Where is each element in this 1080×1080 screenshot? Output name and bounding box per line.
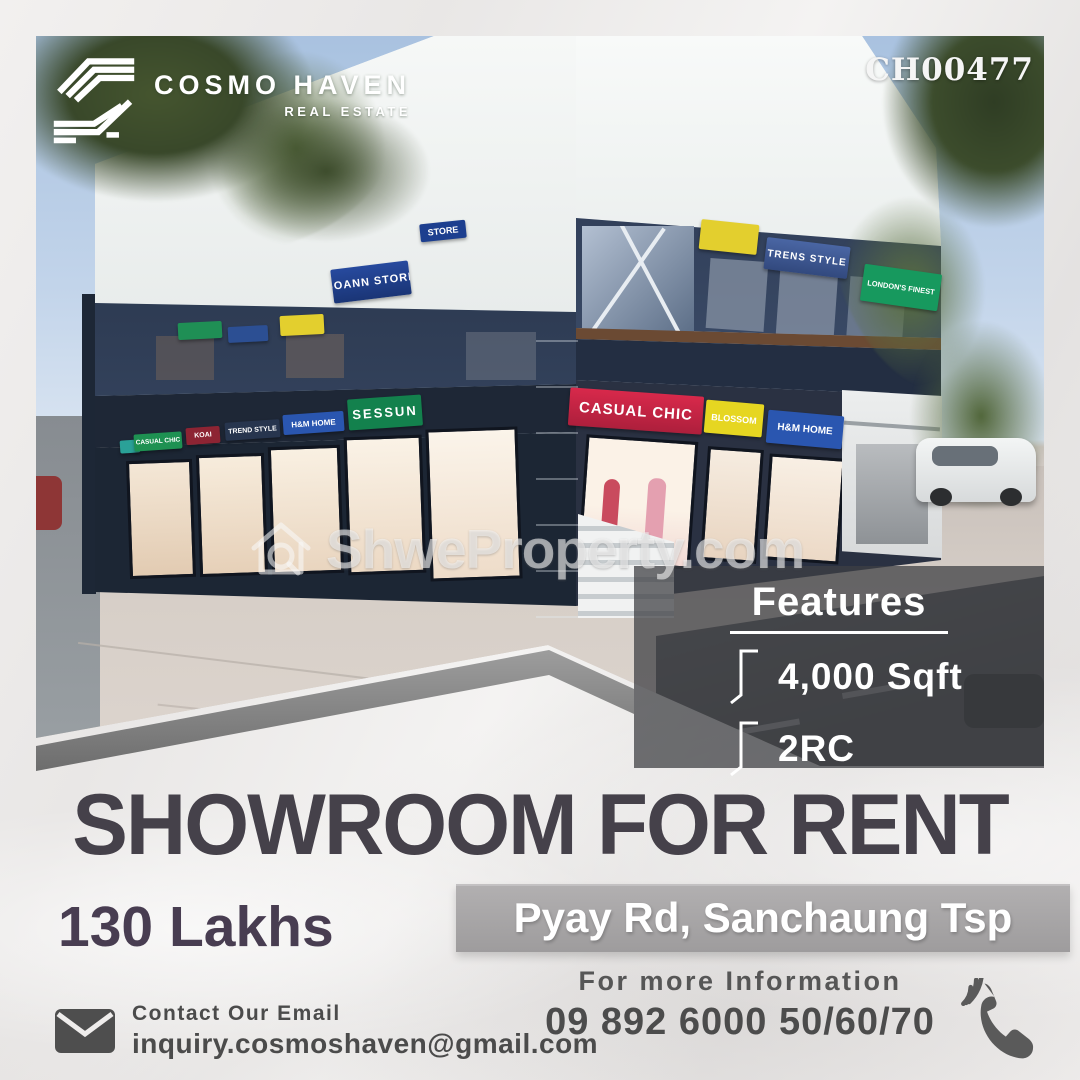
flyer-canvas: SOANN STORE STORE TRENS STYLE LONDON'S F… xyxy=(0,0,1080,1080)
white-car xyxy=(916,438,1036,502)
envelope-icon xyxy=(54,1008,116,1054)
watermark: ShweProperty.com xyxy=(248,516,804,582)
feature-item-text: 2RC xyxy=(778,728,855,770)
headline: SHOWROOM FOR RENT xyxy=(55,776,1025,875)
car-wheel xyxy=(930,488,952,506)
price: 130 Lakhs xyxy=(58,894,334,960)
shop-window xyxy=(126,459,196,579)
location-text: Pyay Rd, Sanchaung Tsp xyxy=(514,894,1013,942)
window-upper-left xyxy=(466,332,536,380)
red-car-edge xyxy=(36,476,62,530)
email-block: Contact Our Email inquiry.cosmoshaven@gm… xyxy=(54,1002,598,1060)
store-sign-koai: KOAI xyxy=(185,426,220,445)
window-upper-left xyxy=(156,336,214,380)
brand-name: COSMO HAVEN xyxy=(154,70,411,101)
store-sign-sessun: SESSUN xyxy=(347,394,423,430)
window-upper-right xyxy=(776,266,839,340)
store-sign-small-green xyxy=(178,321,223,340)
brand-logo: COSMO HAVEN REAL ESTATE xyxy=(48,42,411,146)
info-label: For more Information xyxy=(535,966,945,997)
watermark-text: ShweProperty.com xyxy=(326,517,804,581)
email-label: Contact Our Email xyxy=(132,1002,598,1026)
building-side-edge xyxy=(82,294,96,594)
store-sign-casual-chic-left: CASUAL CHIC xyxy=(133,431,182,451)
phone-number: 09 892 6000 50/60/70 xyxy=(535,1001,945,1044)
info-block: For more Information 09 892 6000 50/60/7… xyxy=(535,966,945,1044)
phone-icon xyxy=(956,978,1048,1070)
watermark-house-icon xyxy=(248,516,314,582)
store-sign-blossom: BLOSSOM xyxy=(704,400,765,438)
bracket-icon xyxy=(730,720,760,778)
store-sign-hm-home-left: H&M HOME xyxy=(282,411,344,435)
email-texts: Contact Our Email inquiry.cosmoshaven@gm… xyxy=(132,1002,598,1060)
corner-angular-window xyxy=(582,226,694,332)
cosmo-haven-logo-icon xyxy=(48,42,140,146)
brand-tagline: REAL ESTATE xyxy=(154,104,411,119)
features-underline xyxy=(730,631,948,634)
store-sign-trend-style: TREND STYLE xyxy=(224,419,280,441)
store-sign-small-blue xyxy=(228,325,269,343)
store-sign-small-yellow xyxy=(280,314,325,336)
store-sign-upper-yellow xyxy=(699,219,760,255)
feature-item: 4,000 Sqft xyxy=(730,648,1044,706)
features-title: Features xyxy=(634,580,1044,625)
brand-text: COSMO HAVEN REAL ESTATE xyxy=(154,70,411,119)
location-banner: Pyay Rd, Sanchaung Tsp xyxy=(456,884,1070,952)
store-sign-hm-home-right: H&M HOME xyxy=(766,410,845,449)
car-wheel xyxy=(1000,488,1022,506)
feature-item-text: 4,000 Sqft xyxy=(778,656,963,698)
bracket-icon xyxy=(730,648,760,706)
features-box: Features 4,000 Sqft 2RC xyxy=(634,566,1044,768)
email-address: inquiry.cosmoshaven@gmail.com xyxy=(132,1028,598,1060)
window-upper-left xyxy=(286,334,344,378)
feature-item: 2RC xyxy=(730,720,1044,778)
car-window xyxy=(932,446,998,466)
window-upper-right xyxy=(706,258,769,332)
listing-id: CH00477 xyxy=(865,52,1034,88)
